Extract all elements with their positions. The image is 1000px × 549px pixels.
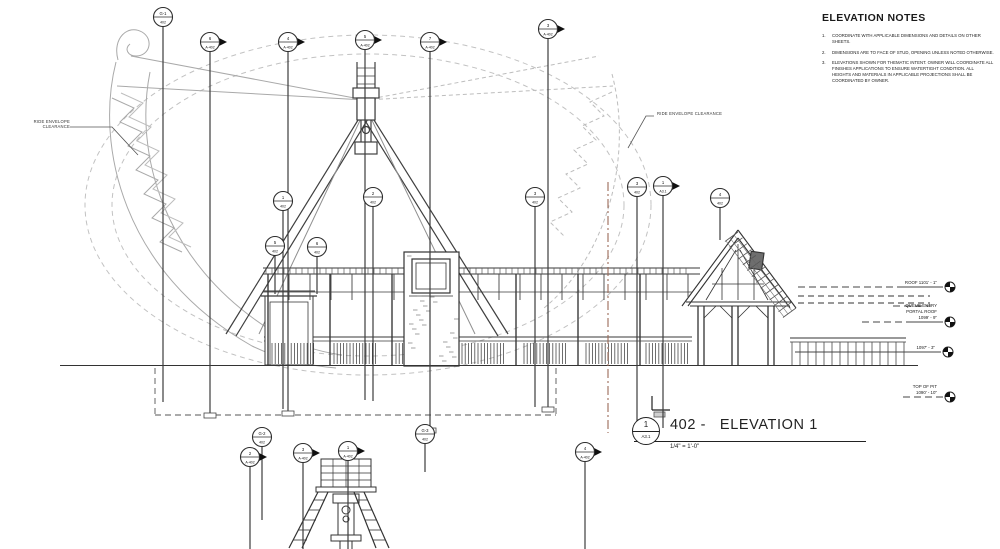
elevation-tag-text: QUEUE ENTRY [905, 303, 937, 308]
elevation-note: 3. ELEVATIONS SHOWN FOR THEMATIC INTENT.… [822, 60, 994, 84]
marker-sheet: 402 [370, 201, 376, 205]
section-cut-marker: 1A-402 [339, 442, 366, 549]
section-cut-marker: 3A-402 [539, 20, 566, 413]
grid-reference-bubble: 4402 [711, 189, 730, 241]
elevation-tag-text: ROOF 1101' - 1" [905, 280, 938, 285]
marker-number: G-3 [422, 428, 430, 433]
drawing-sheet: G-14026A-4024A-4025A-4027A-4023A-4021A3.… [0, 0, 1000, 549]
grid-reference-bubble: 3402 [526, 188, 545, 408]
marker-sheet: 402 [314, 251, 320, 255]
section-cut-marker: 1A3.1 [654, 177, 681, 429]
section-cut-marker: 2A-402 [241, 448, 268, 549]
elevation-note: 1. COORDINATE WITH APPLICABLE DIMENSIONS… [822, 33, 994, 45]
marker-sheet: A-402 [205, 46, 214, 50]
spot-elevation-tag: 1097' - 3" [916, 345, 953, 357]
grid-reference-bubble: G-2402 [253, 428, 272, 521]
spot-elevation-tag: ROOF 1101' - 1" [905, 280, 955, 292]
marker-sheet: A-402 [425, 46, 434, 50]
grid-reference-bubble: 2402 [364, 188, 383, 402]
ride-envelope-label-right: RIDE ENVELOPE CLEARANCE [657, 111, 722, 116]
portal-posts [698, 306, 774, 365]
ride-envelope-leader-left [70, 127, 138, 155]
detail-corner-glyph [652, 396, 670, 410]
marker-sheet: 402 [634, 191, 640, 195]
marker-sheet: A-402 [580, 456, 589, 460]
marker-sheet: A-402 [298, 457, 307, 461]
marker-sheet: A3.1 [659, 190, 666, 194]
spot-elevation-tag: QUEUE ENTRYPORTAL ROOF1099' - 9" [905, 303, 955, 327]
elevation-tag-text: PORTAL ROOF [906, 309, 937, 314]
detail-reference-bubble: 1 A3.1 [632, 417, 660, 445]
spot-elevation-tags: ROOF 1101' - 1"QUEUE ENTRYPORTAL ROOF109… [905, 280, 955, 402]
grid-reference-bubble: 3402 [628, 178, 647, 429]
marker-sheet: A-402 [543, 33, 552, 37]
queue-entry-portal [678, 230, 930, 365]
ride-pivot [363, 127, 370, 134]
ship-seat-steps-left-2 [121, 93, 191, 247]
marker-number: G-2 [259, 431, 267, 436]
title-underline [634, 441, 866, 442]
marker-sheet: A-402 [283, 46, 292, 50]
elevation-notes-title: ELEVATION NOTES [822, 12, 994, 24]
ship-seat-steps-left [112, 98, 182, 252]
ship-prow-scroll [117, 30, 149, 60]
section-cut-marker: 6A-402 [201, 33, 228, 419]
marker-sheet: 402 [259, 441, 265, 445]
marker-number: G-1 [160, 11, 168, 16]
queue-canopy [261, 268, 700, 365]
marker-sheet: 402 [532, 201, 538, 205]
drawing-title: 402 - ELEVATION 1 [670, 417, 818, 433]
section-cut-marker: 4A-402 [576, 443, 603, 549]
elevation-notes: ELEVATION NOTES 1. COORDINATE WITH APPLI… [822, 12, 994, 89]
marker-sheet: 402 [280, 205, 286, 209]
ride-front-view [289, 459, 389, 549]
marker-sheet: A-402 [245, 461, 254, 465]
marker-sheet: 402 [717, 202, 723, 206]
drawing-scale: 1/4" = 1'-0" [670, 444, 699, 450]
grid-reference-bubble: G-3402 [416, 425, 435, 473]
spot-elevation-tag: TOP OF PIT1090' - 10" [913, 384, 955, 402]
marker-sheet: A-402 [343, 455, 352, 459]
elevation-tag-text: 1090' - 10" [916, 390, 937, 395]
marker-sheet: A-402 [360, 44, 369, 48]
elevation-note: 2. DIMENSIONS ARE TO FACE OF STUD, OPENI… [822, 50, 994, 56]
marker-sheet: 402 [422, 438, 428, 442]
marker-sheet: 402 [272, 250, 278, 254]
elevation-tag-text: TOP OF PIT [913, 384, 938, 389]
marker-sheet: 402 [160, 21, 166, 25]
elevation-tag-text: 1097' - 3" [916, 345, 935, 350]
portal-roof-vent [749, 251, 764, 270]
ride-envelope-label-left: RIDE ENVELOPE CLEARANCE [24, 119, 70, 129]
stone-chimney [404, 252, 459, 366]
elevation-tag-text: 1099' - 9" [918, 315, 937, 320]
